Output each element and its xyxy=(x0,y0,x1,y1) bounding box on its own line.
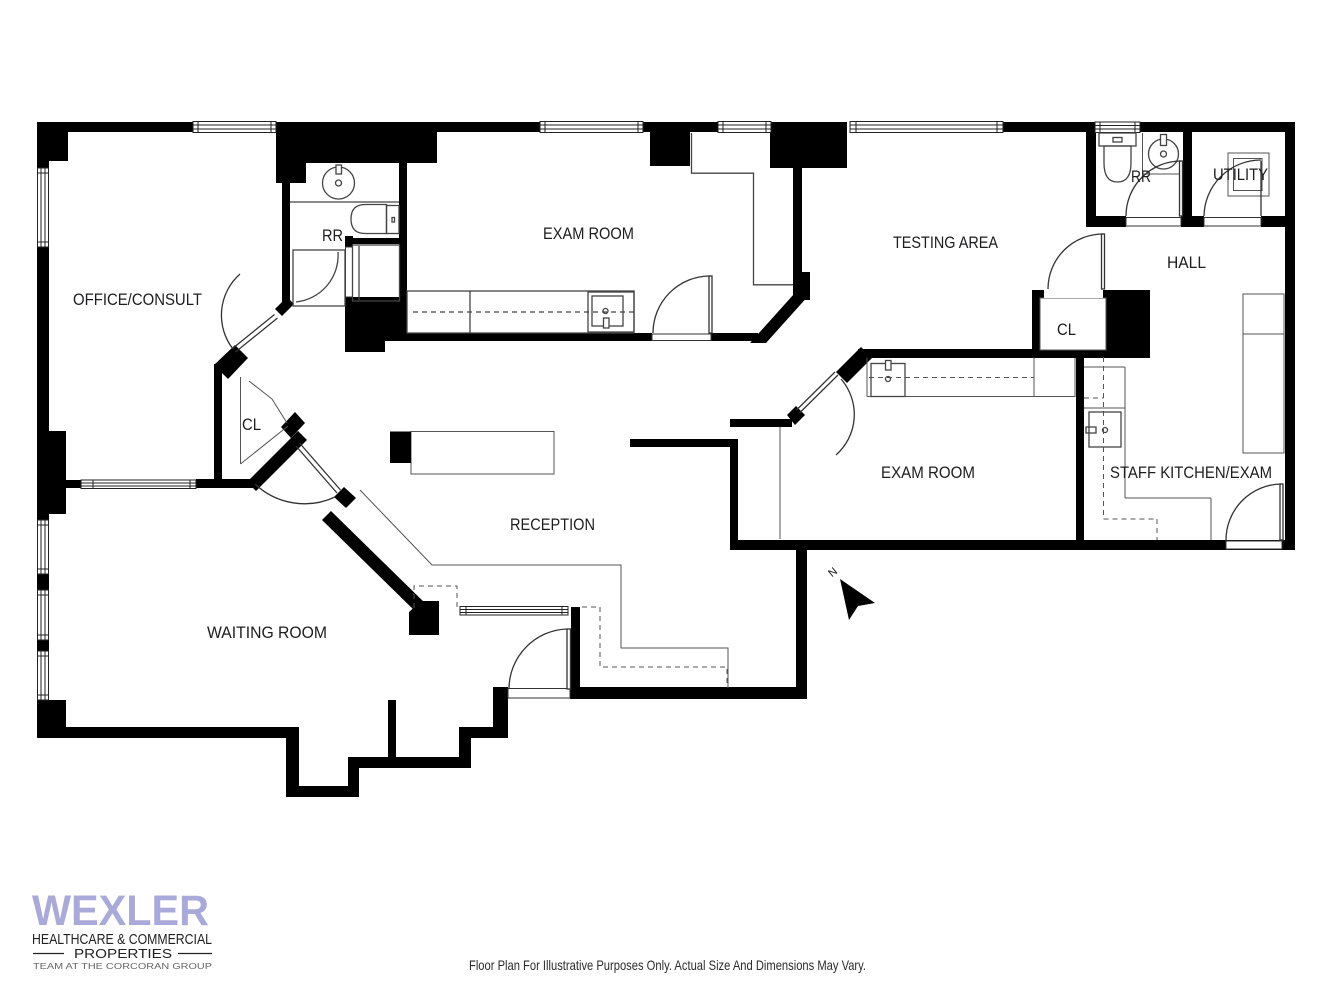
svg-text:PROPERTIES: PROPERTIES xyxy=(74,947,172,961)
svg-text:RR: RR xyxy=(322,226,343,245)
svg-text:WEXLER: WEXLER xyxy=(32,887,209,935)
svg-text:Floor Plan For Illustrative Pu: Floor Plan For Illustrative Purposes Onl… xyxy=(469,957,866,973)
svg-text:TEAM AT THE CORCORAN GROUP: TEAM AT THE CORCORAN GROUP xyxy=(33,961,212,971)
svg-text:TESTING AREA: TESTING AREA xyxy=(893,233,999,252)
svg-text:RR: RR xyxy=(1131,167,1151,186)
svg-text:UTILITY: UTILITY xyxy=(1213,165,1268,184)
svg-text:STAFF KITCHEN/EXAM: STAFF KITCHEN/EXAM xyxy=(1110,463,1272,482)
svg-text:EXAM ROOM: EXAM ROOM xyxy=(881,463,975,482)
svg-text:RECEPTION: RECEPTION xyxy=(510,515,595,534)
svg-text:CL: CL xyxy=(242,415,261,434)
svg-text:HEALTHCARE & COMMERCIAL: HEALTHCARE & COMMERCIAL xyxy=(32,931,212,948)
svg-text:CL: CL xyxy=(1057,320,1076,339)
svg-text:EXAM ROOM: EXAM ROOM xyxy=(543,224,634,243)
svg-text:HALL: HALL xyxy=(1167,253,1206,272)
svg-text:OFFICE/CONSULT: OFFICE/CONSULT xyxy=(73,290,202,309)
svg-text:WAITING ROOM: WAITING ROOM xyxy=(207,623,327,642)
